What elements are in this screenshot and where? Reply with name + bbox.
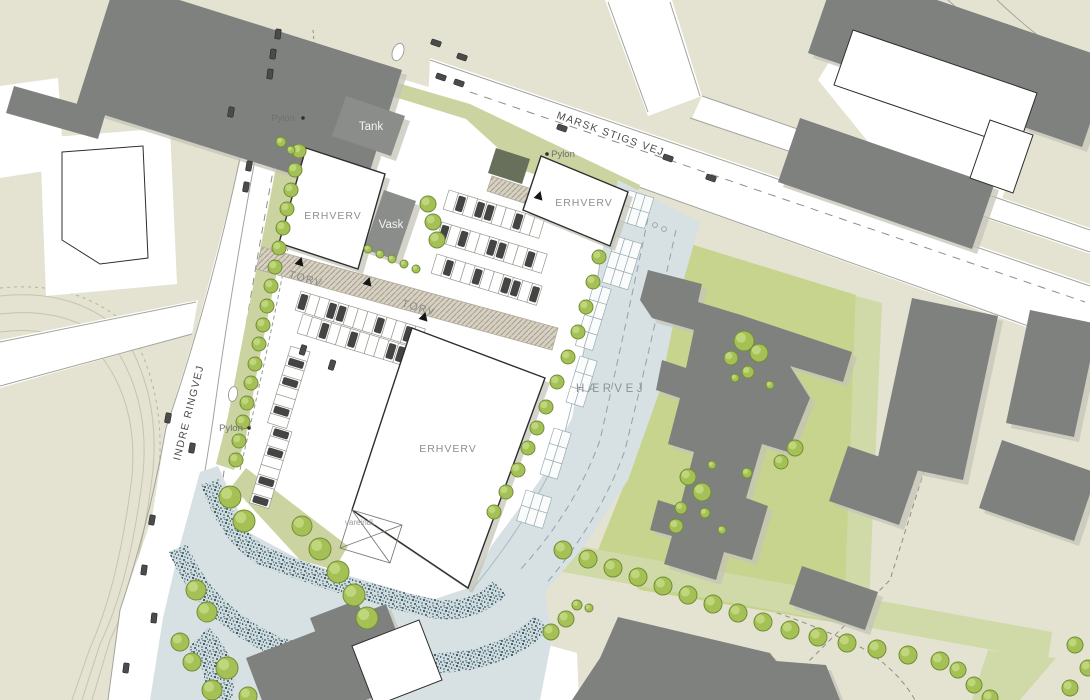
tree-icon <box>766 381 774 389</box>
tree-icon <box>288 163 302 177</box>
tree-icon <box>364 245 372 253</box>
tree-icon <box>838 634 856 652</box>
tree-icon <box>530 421 544 435</box>
tree-icon <box>572 600 582 610</box>
tree-icon <box>680 469 696 485</box>
tree-icon <box>216 657 238 679</box>
tree-icon <box>669 519 683 533</box>
tree-icon <box>774 455 788 469</box>
tree-icon <box>400 260 408 268</box>
building-courtyard-tl <box>62 146 148 264</box>
tree-icon <box>966 677 982 693</box>
tree-icon <box>309 538 331 560</box>
tree-icon <box>754 613 772 631</box>
tree-icon <box>693 483 711 501</box>
marker-label-pylon-mid: Pylon <box>551 149 575 160</box>
tree-icon <box>276 137 286 147</box>
building-label-erhverv-nw: ERHVERV <box>304 210 362 222</box>
tree-icon <box>284 183 298 197</box>
tree-icon <box>558 611 574 627</box>
tree-icon <box>1067 637 1083 653</box>
tree-icon <box>376 250 384 258</box>
tree-icon <box>579 550 597 568</box>
tree-icon <box>487 505 501 519</box>
tree-icon <box>197 602 217 622</box>
tree-icon <box>675 502 687 514</box>
tree-icon <box>729 604 747 622</box>
tree-icon <box>268 260 282 274</box>
tree-icon <box>219 486 241 508</box>
tree-icon <box>868 640 886 658</box>
tree-icon <box>388 255 396 263</box>
tree-icon <box>950 662 966 678</box>
tree-icon <box>256 318 270 332</box>
tree-icon <box>232 434 246 448</box>
tree-icon <box>356 607 378 629</box>
tree-icon <box>186 580 206 600</box>
tree-icon <box>679 586 697 604</box>
tree-icon <box>704 595 722 613</box>
tree-icon <box>511 463 525 477</box>
tree-icon <box>292 516 312 536</box>
tree-icon <box>264 279 278 293</box>
tree-icon <box>272 241 286 255</box>
building-label-vask: Vask <box>379 219 404 231</box>
tree-icon <box>499 485 513 499</box>
tree-icon <box>550 375 564 389</box>
tree-icon <box>571 325 585 339</box>
tree-icon <box>248 357 262 371</box>
tree-icon <box>276 221 290 235</box>
car-icon <box>141 565 148 576</box>
tree-icon <box>229 453 243 467</box>
building-label-erhverv-ne: ERHVERV <box>555 197 613 209</box>
tree-icon <box>425 214 441 230</box>
tree-icon <box>742 468 752 478</box>
tree-icon <box>539 400 553 414</box>
tree-icon <box>429 232 445 248</box>
tree-icon <box>260 299 274 313</box>
car-icon <box>123 663 130 674</box>
tree-icon <box>554 541 572 559</box>
tree-icon <box>239 687 257 700</box>
tree-icon <box>629 568 647 586</box>
tree-icon <box>521 441 535 455</box>
tree-icon <box>604 559 622 577</box>
tree-icon <box>899 646 917 664</box>
street-label-haervej: HÆRVEJ <box>576 383 646 395</box>
tree-icon <box>561 350 575 364</box>
tree-icon <box>240 396 254 410</box>
tree-icon <box>412 265 420 273</box>
building-label-tank: Tank <box>359 121 384 133</box>
marker-label-pylon-south: Pylon <box>219 423 243 434</box>
tree-icon <box>171 633 189 651</box>
car-icon <box>267 69 274 80</box>
marker-label-pylon-north: Pylon <box>271 113 295 124</box>
building-label-erhverv-center: ERHVERV <box>419 443 477 455</box>
pylon-dot-icon <box>301 116 305 120</box>
tree-icon <box>781 621 799 639</box>
site-plan-page: MARSK STIGS VEJ INDRE RINGVEJ HÆRVEJ TOR… <box>0 0 1090 700</box>
tree-icon <box>809 628 827 646</box>
tree-icon <box>750 344 768 362</box>
tree-icon <box>343 584 365 606</box>
tree-icon <box>252 337 266 351</box>
tree-icon <box>731 374 739 382</box>
tree-icon <box>202 680 222 700</box>
tree-icon <box>543 624 559 640</box>
tree-icon <box>718 526 726 534</box>
pylon-dot-icon <box>545 152 549 156</box>
tree-icon <box>700 508 710 518</box>
tree-icon <box>708 461 716 469</box>
tree-icon <box>585 604 593 612</box>
tree-icon <box>233 510 255 532</box>
tree-icon <box>287 146 295 154</box>
car-icon <box>270 49 277 60</box>
car-icon <box>275 29 282 40</box>
tree-icon <box>420 196 436 212</box>
tree-icon <box>327 561 349 583</box>
site-plan-map: MARSK STIGS VEJ INDRE RINGVEJ HÆRVEJ TOR… <box>0 0 1090 700</box>
tree-icon <box>280 202 294 216</box>
annotation-vareindl: vareindl. <box>345 518 375 527</box>
tree-icon <box>724 351 738 365</box>
car-icon <box>151 613 158 624</box>
tree-icon <box>586 275 600 289</box>
tree-icon <box>592 250 606 264</box>
tree-icon <box>183 653 201 671</box>
tree-icon <box>244 376 258 390</box>
tree-icon <box>931 652 949 670</box>
tree-icon <box>1062 680 1078 696</box>
tree-icon <box>742 366 754 378</box>
tree-icon <box>787 440 803 456</box>
pylon-dot-icon <box>247 426 251 430</box>
tree-icon <box>579 300 593 314</box>
tree-icon <box>654 577 672 595</box>
